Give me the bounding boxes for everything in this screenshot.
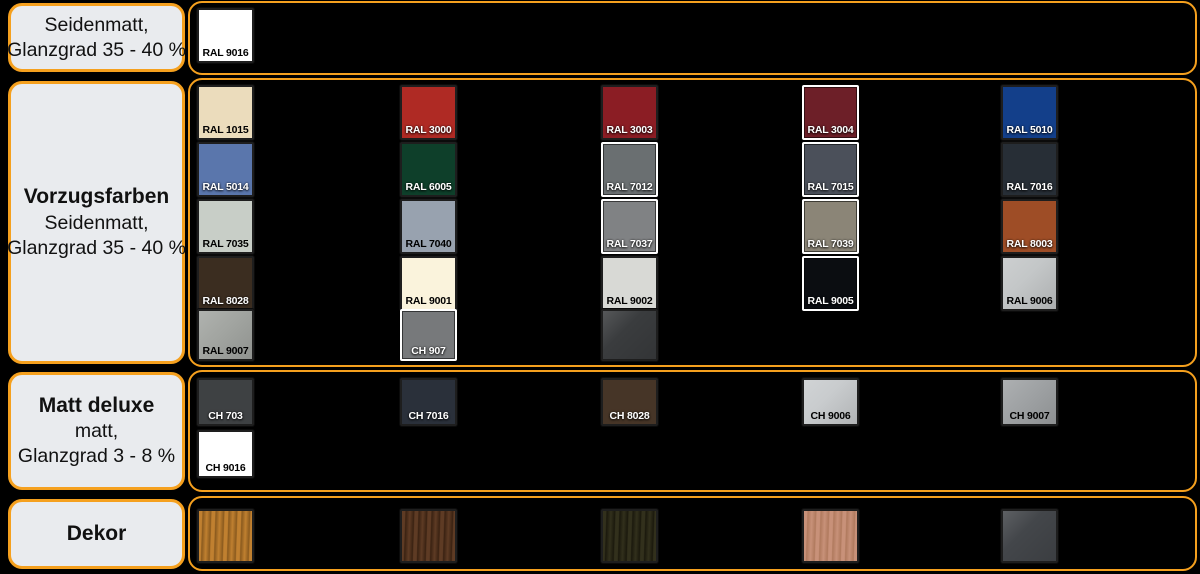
swatch-label: RAL 3003 <box>603 124 656 136</box>
swatch-label: RAL 7016 <box>1003 181 1056 193</box>
color-swatch-ral-5014[interactable]: RAL 5014 <box>197 142 254 197</box>
swatch-label: RAL 6005 <box>402 181 455 193</box>
swatch-label: CH 907 <box>402 345 455 357</box>
swatch-label: RAL 7035 <box>199 238 252 250</box>
swatch-label: CH 703 <box>199 410 252 422</box>
swatch-label: RAL 9007 <box>199 345 252 357</box>
color-swatch-vorzugsfarben-23[interactable] <box>601 309 658 361</box>
color-swatch-ch-8028[interactable]: CH 8028 <box>601 378 658 426</box>
swatch-label: CH 9007 <box>1003 410 1056 422</box>
swatch-label: RAL 3000 <box>402 124 455 136</box>
swatch-label: RAL 7040 <box>402 238 455 250</box>
swatch-label: RAL 7039 <box>804 238 857 250</box>
color-swatch-ral-9002[interactable]: RAL 9002 <box>601 256 658 311</box>
swatch-label: CH 9016 <box>199 462 252 474</box>
section-title: Dekor <box>67 521 127 548</box>
color-swatch-ch-9007[interactable]: CH 9007 <box>1001 378 1058 426</box>
color-swatch-dekor-3[interactable] <box>601 509 658 563</box>
color-swatch-ral-8028[interactable]: RAL 8028 <box>197 256 254 311</box>
swatch-label: RAL 8003 <box>1003 238 1056 250</box>
swatch-label: RAL 9005 <box>804 295 857 307</box>
swatch-label: RAL 9016 <box>199 47 252 59</box>
color-swatch-dekor-5[interactable] <box>1001 509 1058 563</box>
swatch-label: CH 8028 <box>603 410 656 422</box>
color-overview-chart: Seidenmatt, Glanzgrad 35 - 40 % RAL 9016… <box>0 0 1200 574</box>
color-swatch-ral-9007[interactable]: RAL 9007 <box>197 309 254 361</box>
color-swatch-ch-703[interactable]: CH 703 <box>197 378 254 426</box>
panel-vorzugsfarben: RAL 1015RAL 3000RAL 3003RAL 3004RAL 5010… <box>188 78 1197 367</box>
swatch-label: RAL 7037 <box>603 238 656 250</box>
color-swatch-ral-3000[interactable]: RAL 3000 <box>400 85 457 140</box>
section-title: Matt deluxe <box>39 393 155 420</box>
color-swatch-dekor-1[interactable] <box>197 509 254 563</box>
section-subtitle: Glanzgrad 35 - 40 % <box>7 236 186 261</box>
swatch-label: RAL 8028 <box>199 295 252 307</box>
color-swatch-dekor-2[interactable] <box>400 509 457 563</box>
swatch-label: RAL 1015 <box>199 124 252 136</box>
section-subtitle: Glanzgrad 3 - 8 % <box>18 444 175 469</box>
color-swatch-ch-9016[interactable]: CH 9016 <box>197 430 254 478</box>
section-label-matt-deluxe: Matt deluxe matt, Glanzgrad 3 - 8 % <box>8 372 185 490</box>
color-swatch-ral-3003[interactable]: RAL 3003 <box>601 85 658 140</box>
color-swatch-dekor-4[interactable] <box>802 509 859 563</box>
color-swatch-ral-6005[interactable]: RAL 6005 <box>400 142 457 197</box>
color-swatch-ral-9001[interactable]: RAL 9001 <box>400 256 457 311</box>
section-title: Vorzugsfarben <box>24 184 169 211</box>
color-swatch-ral-7040[interactable]: RAL 7040 <box>400 199 457 254</box>
color-swatch-ch-9006[interactable]: CH 9006 <box>802 378 859 426</box>
color-swatch-ral-7012[interactable]: RAL 7012 <box>601 142 658 197</box>
swatch-label: RAL 9002 <box>603 295 656 307</box>
swatch-label: RAL 7015 <box>804 181 857 193</box>
color-swatch-ch-7016[interactable]: CH 7016 <box>400 378 457 426</box>
panel-seidenmatt: RAL 9016 <box>188 1 1197 75</box>
section-subtitle: matt, <box>75 419 118 444</box>
section-subtitle: Glanzgrad 35 - 40 % <box>7 38 186 63</box>
color-swatch-ral-7015[interactable]: RAL 7015 <box>802 142 859 197</box>
swatch-label: RAL 5010 <box>1003 124 1056 136</box>
section-subtitle: Seidenmatt, <box>44 211 148 236</box>
swatch-label: RAL 3004 <box>804 124 857 136</box>
swatch-label: RAL 7012 <box>603 181 656 193</box>
panel-dekor <box>188 496 1197 571</box>
section-label-seidenmatt: Seidenmatt, Glanzgrad 35 - 40 % <box>8 3 185 72</box>
color-swatch-ral-5010[interactable]: RAL 5010 <box>1001 85 1058 140</box>
color-swatch-ral-9005[interactable]: RAL 9005 <box>802 256 859 311</box>
swatch-label: CH 7016 <box>402 410 455 422</box>
color-swatch-ral-7037[interactable]: RAL 7037 <box>601 199 658 254</box>
section-label-dekor: Dekor <box>8 499 185 569</box>
color-swatch-ral-3004[interactable]: RAL 3004 <box>802 85 859 140</box>
color-swatch-ch-907[interactable]: CH 907 <box>400 309 457 361</box>
section-label-vorzugsfarben: Vorzugsfarben Seidenmatt, Glanzgrad 35 -… <box>8 81 185 364</box>
color-swatch-ral-1015[interactable]: RAL 1015 <box>197 85 254 140</box>
color-swatch-ral-8003[interactable]: RAL 8003 <box>1001 199 1058 254</box>
swatch-label: RAL 9001 <box>402 295 455 307</box>
section-subtitle: Seidenmatt, <box>44 13 148 38</box>
swatch-label: RAL 9006 <box>1003 295 1056 307</box>
color-swatch-ral-7035[interactable]: RAL 7035 <box>197 199 254 254</box>
color-swatch-ral-7016[interactable]: RAL 7016 <box>1001 142 1058 197</box>
color-swatch-ral-9006[interactable]: RAL 9006 <box>1001 256 1058 311</box>
swatch-label: CH 9006 <box>804 410 857 422</box>
panel-matt-deluxe: CH 703CH 7016CH 8028CH 9006CH 9007CH 901… <box>188 370 1197 492</box>
color-swatch-ral-7039[interactable]: RAL 7039 <box>802 199 859 254</box>
swatch-label: RAL 5014 <box>199 181 252 193</box>
color-swatch-ral-9016[interactable]: RAL 9016 <box>197 8 254 63</box>
